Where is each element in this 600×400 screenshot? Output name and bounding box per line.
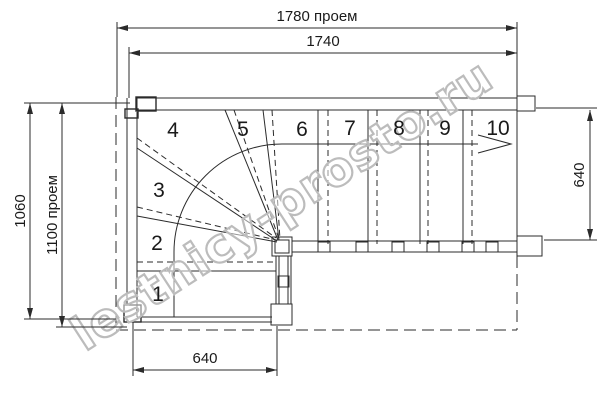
step-label-7: 7 — [344, 117, 356, 140]
step-label-9: 9 — [439, 117, 451, 140]
dim-left-opening-label: 1100 проем — [44, 175, 61, 255]
step-label-5: 5 — [237, 118, 249, 141]
step-label-10: 10 — [486, 117, 509, 140]
handrail — [271, 236, 542, 325]
step-label-1: 1 — [152, 283, 164, 306]
step-label-4: 4 — [167, 119, 179, 142]
stair-plan-drawing: lestnicy-prosto.ru 1780 проем 174 — [0, 0, 600, 400]
dim-right-width-label: 640 — [571, 162, 588, 187]
dim-top-inner: 1740 — [129, 33, 517, 56]
dim-bottom-width-label: 640 — [192, 350, 217, 367]
step-label-2: 2 — [151, 232, 163, 255]
dim-left-height: 1060 — [12, 103, 33, 319]
dim-left-height-label: 1060 — [12, 194, 29, 227]
dim-bottom-width: 640 — [133, 350, 277, 373]
stair-plan-svg: lestnicy-prosto.ru 1780 проем 174 — [0, 0, 600, 400]
dim-right-width: 640 — [571, 110, 593, 240]
watermark-text: lestnicy-prosto.ru — [62, 49, 503, 362]
step-label-6: 6 — [296, 118, 308, 141]
dim-top-inner-label: 1740 — [306, 33, 339, 50]
step-label-3: 3 — [153, 179, 165, 202]
step-label-8: 8 — [393, 117, 405, 140]
dim-left-opening: 1100 проем — [44, 103, 65, 327]
dim-top-opening: 1780 проем — [117, 8, 517, 31]
dim-top-opening-label: 1780 проем — [277, 8, 358, 25]
